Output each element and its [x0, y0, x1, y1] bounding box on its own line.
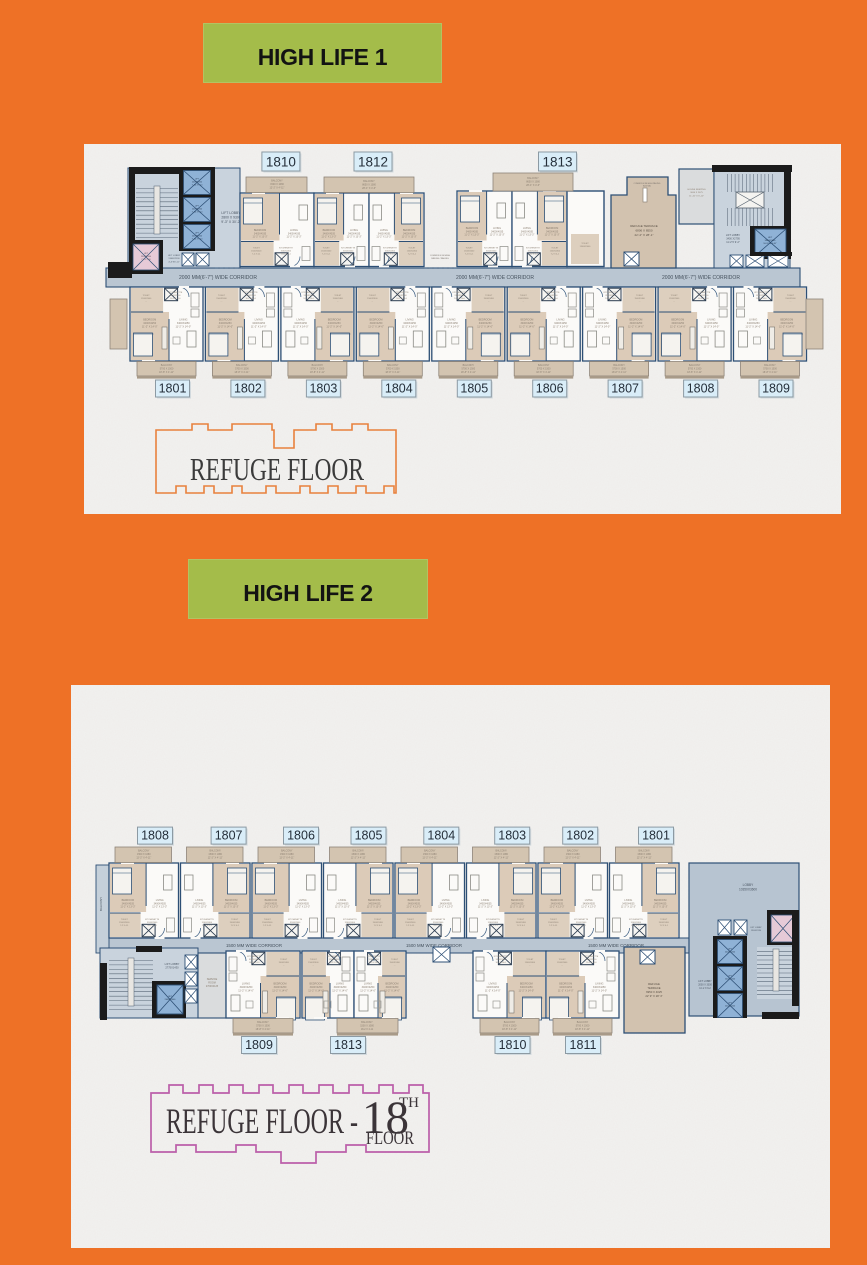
svg-text:11'-2" X 14'-0": 11'-2" X 14'-0" — [272, 989, 288, 992]
svg-text:REFUGE TERRACE: REFUGE TERRACE — [630, 224, 658, 228]
svg-text:KITCHENETTE: KITCHENETTE — [168, 292, 183, 294]
svg-text:10-2 X 4-1: 10-2 X 4-1 — [281, 253, 291, 255]
svg-text:11'-2" X 14'-0": 11'-2" X 14'-0" — [553, 325, 569, 328]
svg-text:3160X2400: 3160X2400 — [433, 922, 444, 924]
svg-text:1809: 1809 — [762, 382, 790, 396]
svg-text:TH: TH — [399, 1095, 419, 1111]
svg-text:7'-10 X7'-10: 7'-10 X7'-10 — [192, 185, 204, 187]
svg-text:1802: 1802 — [566, 829, 594, 843]
svg-text:TOILET: TOILET — [520, 295, 528, 297]
svg-text:KITCHENETTE: KITCHENETTE — [629, 919, 644, 921]
svg-text:11'-2" X 13'-3": 11'-2" X 13'-3" — [192, 906, 207, 909]
svg-text:10-2 X 4-1: 10-2 X 4-1 — [147, 925, 157, 927]
svg-text:1500X2400: 1500X2400 — [407, 250, 418, 252]
svg-text:BALCONY: BALCONY — [99, 897, 103, 911]
svg-text:1810: 1810 — [266, 155, 296, 170]
svg-text:COMMON 0.9M HIGH PAILING: COMMON 0.9M HIGH PAILING — [634, 182, 661, 185]
svg-text:11'-2"X 9'-2": 11'-2"X 9'-2" — [726, 241, 740, 244]
svg-text:TOILET: TOILET — [231, 919, 239, 921]
svg-text:LOBBY: LOBBY — [743, 883, 755, 887]
svg-text:11'-2" X 14'-0": 11'-2" X 14'-0" — [332, 989, 348, 992]
svg-text:10-2 X 4-1: 10-2 X 4-1 — [202, 925, 212, 927]
svg-text:7'-10 X7'-10: 7'-10 X7'-10 — [192, 212, 204, 214]
svg-text:TOILET: TOILET — [408, 248, 416, 250]
svg-text:3160X2400: 3160X2400 — [496, 959, 507, 961]
svg-text:11'-2" X 13'-3": 11'-2" X 13'-3" — [478, 906, 493, 909]
svg-text:10-2 X 4-1: 10-2 X 4-1 — [576, 925, 586, 927]
svg-text:11'-2" X 14'-0": 11'-2" X 14'-0" — [518, 989, 534, 992]
svg-text:2400X2400: 2400X2400 — [725, 951, 736, 953]
svg-text:TOILET: TOILET — [369, 295, 377, 297]
svg-text:KITCHENETTE: KITCHENETTE — [431, 919, 446, 921]
svg-text:7-2 X 4-1: 7-2 X 4-1 — [406, 925, 415, 927]
svg-text:TOILET: TOILET — [787, 295, 795, 297]
svg-text:3160X2400: 3160X2400 — [486, 250, 497, 252]
svg-text:11'-2" X 14'-0": 11'-2" X 14'-0" — [779, 325, 795, 328]
svg-text:11'-2" X 14'-0": 11'-2" X 14'-0" — [591, 989, 607, 992]
svg-text:2400X2400: 2400X2400 — [725, 978, 736, 980]
svg-text:TOILET: TOILET — [517, 919, 525, 921]
svg-text:2775X1430: 2775X1430 — [165, 966, 179, 970]
svg-text:10-2 X 14-0: 10-2 X 14-0 — [547, 298, 558, 300]
svg-text:11'-2" X 14'-0": 11'-2" X 14'-0" — [175, 325, 191, 328]
svg-text:11'-2" X 13'-3": 11'-2" X 13'-3" — [367, 906, 382, 909]
svg-text:10-2 X 4-1: 10-2 X 4-1 — [528, 253, 538, 255]
svg-text:11'-2" X 14'-0": 11'-2" X 14'-0" — [477, 325, 493, 328]
svg-text:11'-2" X 13'-3": 11'-2" X 13'-3" — [120, 906, 135, 909]
svg-text:3160X2400: 3160X2400 — [698, 295, 709, 297]
svg-text:3160X2400: 3160X2400 — [281, 250, 292, 252]
svg-text:3160X2400: 3160X2400 — [605, 295, 616, 297]
svg-text:9'-3" X 30'-2": 9'-3" X 30'-2" — [221, 220, 241, 224]
svg-text:1500X2400: 1500X2400 — [557, 962, 568, 964]
svg-text:3160X2400: 3160X2400 — [631, 922, 642, 924]
svg-text:3160X2400: 3160X2400 — [488, 922, 499, 924]
svg-text:1809: 1809 — [245, 1038, 273, 1052]
svg-text:12'-2" X 4'-11": 12'-2" X 4'-11" — [208, 856, 223, 859]
svg-text:10-2 X 14-0: 10-2 X 14-0 — [369, 962, 380, 964]
svg-text:1500X2400: 1500X2400 — [216, 298, 227, 300]
svg-text:REFUGE FLOOR -: REFUGE FLOOR - — [166, 1101, 358, 1141]
svg-text:10-2 X 14-0: 10-2 X 14-0 — [756, 298, 767, 300]
svg-text:11'-2" X 14'-0": 11'-2" X 14'-0" — [745, 325, 761, 328]
svg-text:11'-2" X 13'-3": 11'-2" X 13'-3" — [287, 236, 302, 239]
svg-text:LIFT LOBBY: LIFT LOBBY — [726, 234, 740, 237]
svg-text:1500X2400: 1500X2400 — [669, 298, 680, 300]
svg-text:KITCHENETTE: KITCHENETTE — [603, 292, 618, 294]
svg-text:1500X2400: 1500X2400 — [464, 250, 475, 252]
svg-text:7-2 X 4-1: 7-2 X 4-1 — [231, 925, 240, 927]
svg-text:TOILET: TOILET — [218, 295, 226, 297]
svg-text:11'-2" X 13'-3": 11'-2" X 13'-3" — [224, 906, 239, 909]
svg-text:11'-2" X 13'-3": 11'-2" X 13'-3" — [464, 234, 479, 237]
svg-text:10-2 X 14-0: 10-2 X 14-0 — [396, 298, 407, 300]
svg-text:LIFT: LIFT — [168, 996, 173, 998]
svg-text:11'-2" X 14'-0": 11'-2" X 14'-0" — [238, 989, 254, 992]
svg-text:KITCHENETTE: KITCHENETTE — [341, 248, 356, 250]
svg-text:11'-2" X 14'-0": 11'-2" X 14'-0" — [326, 325, 342, 328]
svg-text:12'-2" X 4'-11": 12'-2" X 4'-11" — [351, 856, 366, 859]
svg-text:3160X2400: 3160X2400 — [303, 295, 314, 297]
svg-text:7-2 X 4-1: 7-2 X 4-1 — [660, 925, 669, 927]
svg-text:10-2 X 4-1: 10-2 X 4-1 — [631, 925, 641, 927]
svg-text:1500X2400: 1500X2400 — [230, 922, 241, 924]
svg-text:7-2 X 4-1: 7-2 X 4-1 — [549, 925, 558, 927]
svg-text:11'-2" X 14'-0": 11'-2" X 14'-0" — [293, 325, 309, 328]
svg-text:18'-8" X 4'-11": 18'-8" X 4'-11" — [612, 371, 627, 374]
svg-text:11'-2" X 14'-0": 11'-2" X 14'-0" — [360, 989, 376, 992]
svg-text:1806: 1806 — [536, 382, 564, 396]
svg-text:1500X2400: 1500X2400 — [373, 922, 384, 924]
svg-text:10-2 X 14-0: 10-2 X 14-0 — [698, 298, 709, 300]
svg-text:11'-2" X 13'-3": 11'-2" X 13'-3" — [621, 906, 636, 909]
svg-text:KITCHENETTE: KITCHENETTE — [383, 248, 398, 250]
svg-text:28'-4" X 4'-6": 28'-4" X 4'-6" — [526, 184, 540, 187]
svg-text:3160X2400: 3160X2400 — [385, 250, 396, 252]
svg-text:18'-8" X 4'-11": 18'-8" X 4'-11" — [536, 371, 551, 374]
svg-text:2400X2400: 2400X2400 — [725, 1005, 736, 1007]
svg-text:18'-8" X 4'-11": 18'-8" X 4'-11" — [159, 371, 174, 374]
svg-text:10-2 X 14-0: 10-2 X 14-0 — [495, 962, 506, 964]
svg-text:1500X2400: 1500X2400 — [516, 922, 527, 924]
svg-text:10-2 X 4-1: 10-2 X 4-1 — [433, 925, 443, 927]
svg-text:7-2 X 4-1: 7-2 X 4-1 — [120, 925, 129, 927]
svg-text:1808: 1808 — [141, 829, 169, 843]
svg-text:TOILET: TOILET — [581, 243, 589, 245]
svg-text:11'-2" X 13'-3": 11'-2" X 13'-3" — [653, 906, 668, 909]
svg-text:3160X2400: 3160X2400 — [586, 959, 597, 961]
svg-text:1808: 1808 — [687, 382, 715, 396]
svg-text:1500X2400: 1500X2400 — [659, 922, 670, 924]
svg-text:TOILET: TOILET — [551, 248, 559, 250]
svg-text:TOILET: TOILET — [280, 959, 288, 961]
svg-text:1813: 1813 — [334, 1038, 362, 1052]
svg-text:7-2 X 4-1: 7-2 X 4-1 — [551, 253, 560, 255]
svg-text:10-2 X 14-0: 10-2 X 14-0 — [170, 298, 181, 300]
svg-text:11'-2" X 13'-3": 11'-2" X 13'-3" — [321, 236, 336, 239]
svg-text:FLOOR: FLOOR — [366, 1128, 414, 1149]
svg-text:1300X2130: 1300X2130 — [751, 930, 762, 932]
svg-text:1807: 1807 — [215, 829, 243, 843]
svg-text:11'-10" X 6'-10": 11'-10" X 6'-10" — [689, 195, 704, 197]
svg-text:TOILET: TOILET — [323, 248, 331, 250]
svg-text:11'-2" X 13'-3": 11'-2" X 13'-3" — [510, 906, 525, 909]
svg-text:12'-2" X 4'-11": 12'-2" X 4'-11" — [494, 856, 509, 859]
svg-text:3400X2400: 3400X2400 — [765, 240, 776, 242]
svg-text:10-2 X 4-1: 10-2 X 4-1 — [486, 253, 496, 255]
svg-text:1806: 1806 — [287, 829, 315, 843]
svg-text:TOILET: TOILET — [264, 919, 272, 921]
svg-text:1810: 1810 — [499, 1038, 527, 1052]
svg-text:KITCHENETTE: KITCHENETTE — [200, 919, 215, 921]
svg-text:11'-2" X 14'-0": 11'-2" X 14'-0" — [251, 325, 267, 328]
svg-text:1500X2400: 1500X2400 — [141, 298, 152, 300]
svg-text:11'-2" X 13'-3": 11'-2" X 13'-3" — [152, 906, 167, 909]
svg-text:11'-2" X 13'-3": 11'-2" X 13'-3" — [545, 234, 560, 237]
svg-text:11'-2" X 13'-3": 11'-2" X 13'-3" — [490, 234, 505, 237]
svg-text:7-2 X 4-1: 7-2 X 4-1 — [263, 925, 272, 927]
svg-text:7-2 X 4-1: 7-2 X 4-1 — [465, 253, 474, 255]
svg-text:18'-8" X 4'-11": 18'-8" X 4'-11" — [461, 371, 476, 374]
svg-text:11'-2" X 14'-0": 11'-2" X 14'-0" — [384, 989, 400, 992]
svg-text:10-2 X 14-0: 10-2 X 14-0 — [586, 962, 597, 964]
svg-text:2800 X 9300: 2800 X 9300 — [221, 216, 240, 220]
svg-text:18-2 X 4-11: 18-2 X 4-11 — [361, 1028, 374, 1031]
svg-text:TOILET: TOILET — [485, 295, 493, 297]
svg-text:KITCHENETTE: KITCHENETTE — [145, 919, 160, 921]
svg-text:11'-2" X 14'-0": 11'-2" X 14'-0" — [444, 325, 460, 328]
svg-text:10350X3600: 10350X3600 — [739, 887, 757, 891]
svg-text:1500X2400: 1500X2400 — [321, 250, 332, 252]
svg-text:18'-8" X 4'-11": 18'-8" X 4'-11" — [502, 1028, 517, 1031]
svg-text:TOILET: TOILET — [526, 959, 534, 961]
svg-text:11'-2" X 13'-3": 11'-2" X 13'-3" — [549, 906, 564, 909]
svg-text:3160X2400: 3160X2400 — [454, 295, 465, 297]
svg-text:1500X2400: 1500X2400 — [333, 298, 344, 300]
svg-text:TOILET: TOILET — [391, 959, 399, 961]
svg-text:TOILET: TOILET — [636, 295, 644, 297]
svg-text:KITCHENETTE: KITCHENETTE — [486, 919, 501, 921]
svg-text:KITCHENETTE: KITCHENETTE — [288, 919, 303, 921]
svg-text:3160X2400: 3160X2400 — [246, 295, 257, 297]
svg-text:3160X2400: 3160X2400 — [756, 295, 767, 297]
svg-text:3160X2400: 3160X2400 — [528, 250, 539, 252]
svg-text:1805: 1805 — [355, 829, 383, 843]
svg-text:TOILET: TOILET — [310, 959, 318, 961]
svg-text:11'-2" X 14'-0": 11'-2" X 14'-0" — [485, 989, 501, 992]
svg-text:KITCHENETTE: KITCHENETTE — [279, 248, 294, 250]
svg-text:12'-2" X 4'-11": 12'-2" X 4'-11" — [637, 856, 652, 859]
svg-text:KITCHENETTE: KITCHENETTE — [247, 956, 262, 958]
svg-text:3160X2400: 3160X2400 — [396, 295, 407, 297]
svg-text:10-2 X 14-0: 10-2 X 14-0 — [329, 962, 340, 964]
svg-text:10-2 X 14-0: 10-2 X 14-0 — [454, 298, 465, 300]
svg-text:10-2 X 4-1: 10-2 X 4-1 — [290, 925, 300, 927]
svg-text:1813: 1813 — [542, 155, 572, 170]
svg-text:11'-2" X 14'-0": 11'-2" X 14'-0" — [142, 325, 158, 328]
svg-text:11'-2" X 13'-3": 11'-2" X 13'-3" — [295, 906, 310, 909]
svg-text:6806 X 8550: 6806 X 8550 — [635, 228, 652, 232]
svg-text:LIFT LOBBY: LIFT LOBBY — [165, 962, 180, 966]
svg-text:10-11" X 9-10": 10-11" X 9-10" — [763, 243, 777, 245]
svg-text:11'-2" X 14'-0": 11'-2" X 14'-0" — [217, 325, 233, 328]
svg-text:1500X2400: 1500X2400 — [367, 298, 378, 300]
svg-text:18'-8" X 4'-11": 18'-8" X 4'-11" — [234, 371, 249, 374]
svg-text:3400 X2795: 3400 X2795 — [726, 238, 740, 241]
svg-text:1500X2400: 1500X2400 — [518, 298, 529, 300]
svg-text:2400X2400: 2400X2400 — [192, 209, 203, 211]
svg-text:10-2 X 4-1: 10-2 X 4-1 — [488, 925, 498, 927]
svg-text:KITCHENETTE: KITCHENETTE — [584, 956, 599, 958]
svg-text:1802: 1802 — [234, 382, 262, 396]
svg-text:11'-2" X 13'-3": 11'-2" X 13'-3" — [263, 906, 278, 909]
svg-text:1500 MM WIDE CORRIDOR: 1500 MM WIDE CORRIDOR — [226, 943, 282, 948]
svg-text:3160X2400: 3160X2400 — [249, 959, 260, 961]
svg-text:TOILET: TOILET — [374, 919, 382, 921]
svg-text:KITCHENETTE: KITCHENETTE — [302, 292, 317, 294]
svg-text:7-2 X 4-1: 7-2 X 4-1 — [252, 253, 261, 255]
svg-text:TOILET: TOILET — [466, 248, 474, 250]
svg-text:12'-2" X 4'-11": 12'-2" X 4'-11" — [279, 856, 294, 859]
svg-text:KITCHENETTE: KITCHENETTE — [453, 292, 468, 294]
svg-text:1500X2400: 1500X2400 — [785, 298, 796, 300]
svg-text:2700X4125: 2700X4125 — [206, 985, 219, 988]
svg-text:11'-2" X 14'-0": 11'-2" X 14'-0" — [595, 325, 611, 328]
svg-text:7-2 X 4-1: 7-2 X 4-1 — [374, 925, 383, 927]
svg-text:11'-2" X 13'-3": 11'-2" X 13'-3" — [581, 906, 596, 909]
svg-text:12'-2" X 4'-11": 12'-2" X 4'-11" — [422, 856, 437, 859]
svg-text:1811: 1811 — [570, 1038, 597, 1052]
svg-text:1500X2400: 1500X2400 — [484, 298, 495, 300]
svg-text:KITCHENETTE: KITCHENETTE — [574, 919, 589, 921]
svg-text:3160X2400: 3160X2400 — [170, 295, 181, 297]
svg-text:3160X2400: 3160X2400 — [202, 922, 213, 924]
svg-text:1805: 1805 — [460, 382, 488, 396]
svg-text:11'-2" X 13'-3": 11'-2" X 13'-3" — [519, 234, 534, 237]
svg-text:3160X2400: 3160X2400 — [290, 922, 301, 924]
svg-text:KITCHENETTE: KITCHENETTE — [526, 248, 541, 250]
svg-text:11'-2" X 13'-3": 11'-2" X 13'-3" — [438, 906, 453, 909]
svg-text:KITCHENETTE: KITCHENETTE — [395, 292, 410, 294]
svg-text:7-2 X 4-1: 7-2 X 4-1 — [408, 253, 417, 255]
svg-text:7-2 X 4-1: 7-2 X 4-1 — [517, 925, 526, 927]
svg-text:1801: 1801 — [159, 382, 187, 396]
svg-text:18'-8" X 4'-11": 18'-8" X 4'-11" — [256, 1028, 271, 1031]
svg-text:TOILET: TOILET — [660, 919, 668, 921]
svg-text:KITCHENETTE: KITCHENETTE — [754, 292, 769, 294]
svg-text:22' 9" X 28' 4": 22' 9" X 28' 4" — [645, 994, 662, 998]
svg-text:11'-2" X 13'-3": 11'-2" X 13'-3" — [347, 236, 362, 239]
svg-text:11'-2" X 14'-0": 11'-2" X 14'-0" — [402, 325, 418, 328]
svg-text:1500X2400: 1500X2400 — [389, 962, 400, 964]
svg-text:KITCHENETTE: KITCHENETTE — [367, 956, 382, 958]
svg-text:1500X2400: 1500X2400 — [119, 922, 130, 924]
svg-text:TOILET: TOILET — [121, 919, 129, 921]
svg-text:1500X2400: 1500X2400 — [308, 962, 319, 964]
svg-text:18'-8" X 4'-11": 18'-8" X 4'-11" — [310, 371, 325, 374]
svg-text:2300X2400: 2300X2400 — [141, 256, 152, 258]
svg-text:TOILET: TOILET — [334, 295, 342, 297]
svg-text:1803: 1803 — [309, 382, 337, 396]
svg-text:10-2 X 14-0: 10-2 X 14-0 — [245, 298, 256, 300]
svg-text:10-2 X 14-0: 10-2 X 14-0 — [249, 962, 260, 964]
svg-text:11'-2 X 9-2: 11'-2 X 9-2 — [699, 987, 711, 990]
svg-text:11'-2" X 13'-3": 11'-2" X 13'-3" — [335, 906, 350, 909]
svg-text:1500X2400: 1500X2400 — [262, 922, 273, 924]
svg-text:1500X2400: 1500X2400 — [251, 250, 262, 252]
svg-text:11'-2" X 13'-3": 11'-2" X 13'-3" — [253, 236, 268, 239]
svg-text:1500X2400: 1500X2400 — [405, 922, 416, 924]
svg-text:TOILET: TOILET — [550, 919, 558, 921]
svg-text:28'-4" X 4'-6": 28'-4" X 4'-6" — [362, 187, 376, 190]
svg-text:KITCHENETTE: KITCHENETTE — [244, 292, 259, 294]
svg-text:2000 MM(6'-7") WIDE CORRIDOR: 2000 MM(6'-7") WIDE CORRIDOR — [662, 275, 740, 281]
svg-text:AUDITAL: AUDITAL — [643, 185, 651, 188]
svg-text:12'-2" X 4'-11": 12'-2" X 4'-11" — [270, 186, 285, 189]
svg-text:1500X2400: 1500X2400 — [580, 246, 591, 248]
svg-text:1801: 1801 — [642, 829, 670, 843]
svg-text:11'-2" X 14'-0": 11'-2" X 14'-0" — [704, 325, 720, 328]
svg-text:3000 X 2075: 3000 X 2075 — [690, 192, 703, 194]
svg-text:11'-2" X 13'-3": 11'-2" X 13'-3" — [406, 906, 421, 909]
svg-text:TOILET: TOILET — [671, 295, 679, 297]
svg-text:KITCHENETTE: KITCHENETTE — [343, 919, 358, 921]
svg-text:PAILING / RAILING: PAILING / RAILING — [431, 257, 449, 260]
svg-text:3160X2400: 3160X2400 — [343, 250, 354, 252]
svg-text:11'-2" X 13'-3": 11'-2" X 13'-3" — [402, 236, 417, 239]
svg-text:HOUSE KEEPING: HOUSE KEEPING — [687, 189, 705, 191]
svg-text:1500X2400: 1500X2400 — [634, 298, 645, 300]
svg-text:2000 MM(6'-7") WIDE CORRIDOR: 2000 MM(6'-7") WIDE CORRIDOR — [456, 275, 534, 281]
svg-text:LIFT LOBBY: LIFT LOBBY — [221, 211, 241, 215]
svg-text:LIFT LOBBY: LIFT LOBBY — [750, 927, 762, 929]
svg-text:LIFT LOBBY: LIFT LOBBY — [168, 255, 181, 257]
svg-text:LIFT: LIFT — [768, 237, 773, 239]
svg-text:12'-2" X 4'-11": 12'-2" X 4'-11" — [565, 856, 580, 859]
svg-text:10-2 X 4-1: 10-2 X 4-1 — [343, 253, 353, 255]
svg-text:KITCHENETTE: KITCHENETTE — [546, 292, 561, 294]
svg-text:1807: 1807 — [611, 382, 639, 396]
svg-text:TOILET: TOILET — [559, 959, 567, 961]
svg-text:1500X2400: 1500X2400 — [548, 922, 559, 924]
svg-text:2400X2400: 2400X2400 — [192, 182, 203, 184]
svg-text:7'-6 X 7'10: 7'-6 X 7'10 — [141, 259, 151, 261]
svg-text:1804: 1804 — [427, 829, 455, 843]
svg-text:11'-2" X 14'-0": 11'-2" X 14'-0" — [368, 325, 384, 328]
svg-text:TOILET: TOILET — [253, 248, 261, 250]
svg-text:3160X2400: 3160X2400 — [345, 922, 356, 924]
svg-text:11'-2" X 14'-0": 11'-2" X 14'-0" — [628, 325, 644, 328]
svg-text:7'-10 X7'-10: 7'-10 X7'-10 — [192, 239, 204, 241]
svg-text:10-2 X 14-0: 10-2 X 14-0 — [303, 298, 314, 300]
svg-text:KITCHENETTE: KITCHENETTE — [494, 956, 509, 958]
svg-text:1500X2400: 1500X2400 — [525, 962, 536, 964]
svg-text:TOILET: TOILET — [143, 295, 151, 297]
svg-text:10-2 X 14-0: 10-2 X 14-0 — [605, 298, 616, 300]
svg-text:11'-2" X 14'-0": 11'-2" X 14'-0" — [670, 325, 686, 328]
svg-text:1500X2400: 1500X2400 — [550, 250, 561, 252]
svg-text:11'-2" X 14'-0": 11'-2" X 14'-0" — [558, 989, 574, 992]
svg-text:12'-2" X 4'-11": 12'-2" X 4'-11" — [136, 856, 151, 859]
svg-text:18'-8" X 4'-11": 18'-8" X 4'-11" — [687, 371, 702, 374]
svg-text:2400X2400: 2400X2400 — [192, 236, 203, 238]
svg-text:18'-8" X 4'-11": 18'-8" X 4'-11" — [575, 1028, 590, 1031]
svg-text:18'-8" X 4'-11": 18'-8" X 4'-11" — [763, 371, 778, 374]
svg-text:22'-4" X 28'-1": 22'-4" X 28'-1" — [635, 233, 654, 237]
svg-text:KITCHENETTE: KITCHENETTE — [696, 292, 711, 294]
svg-text:KITCHENETTE: KITCHENETTE — [484, 248, 499, 250]
svg-text:1500X2400: 1500X2400 — [279, 962, 290, 964]
svg-text:11'-2" X 14'-0": 11'-2" X 14'-0" — [308, 989, 324, 992]
svg-text:1803: 1803 — [498, 829, 526, 843]
svg-text:2400X2400: 2400X2400 — [165, 999, 176, 1001]
svg-text:3160X2400: 3160X2400 — [329, 959, 340, 961]
svg-text:1300X2130: 1300X2130 — [168, 258, 180, 260]
svg-text:10-2 X 4-1: 10-2 X 4-1 — [385, 253, 395, 255]
svg-text:COMMON 0.9M HIGH: COMMON 0.9M HIGH — [430, 255, 450, 257]
svg-text:3160X2400: 3160X2400 — [147, 922, 158, 924]
svg-text:7-2 X 4-1: 7-2 X 4-1 — [322, 253, 331, 255]
svg-text:4'-3"X6'-11": 4'-3"X6'-11" — [168, 261, 179, 263]
svg-text:18'-8" X 4'-11": 18'-8" X 4'-11" — [385, 371, 400, 374]
svg-text:3160X2400: 3160X2400 — [576, 922, 587, 924]
svg-text:10-2 X 4-1: 10-2 X 4-1 — [345, 925, 355, 927]
svg-text:11'-2" X 14'-0": 11'-2" X 14'-0" — [519, 325, 535, 328]
svg-text:1804: 1804 — [385, 382, 413, 396]
svg-text:3160X2400: 3160X2400 — [547, 295, 558, 297]
svg-text:1812: 1812 — [358, 155, 388, 170]
svg-text:REFUGE FLOOR: REFUGE FLOOR — [190, 451, 364, 487]
